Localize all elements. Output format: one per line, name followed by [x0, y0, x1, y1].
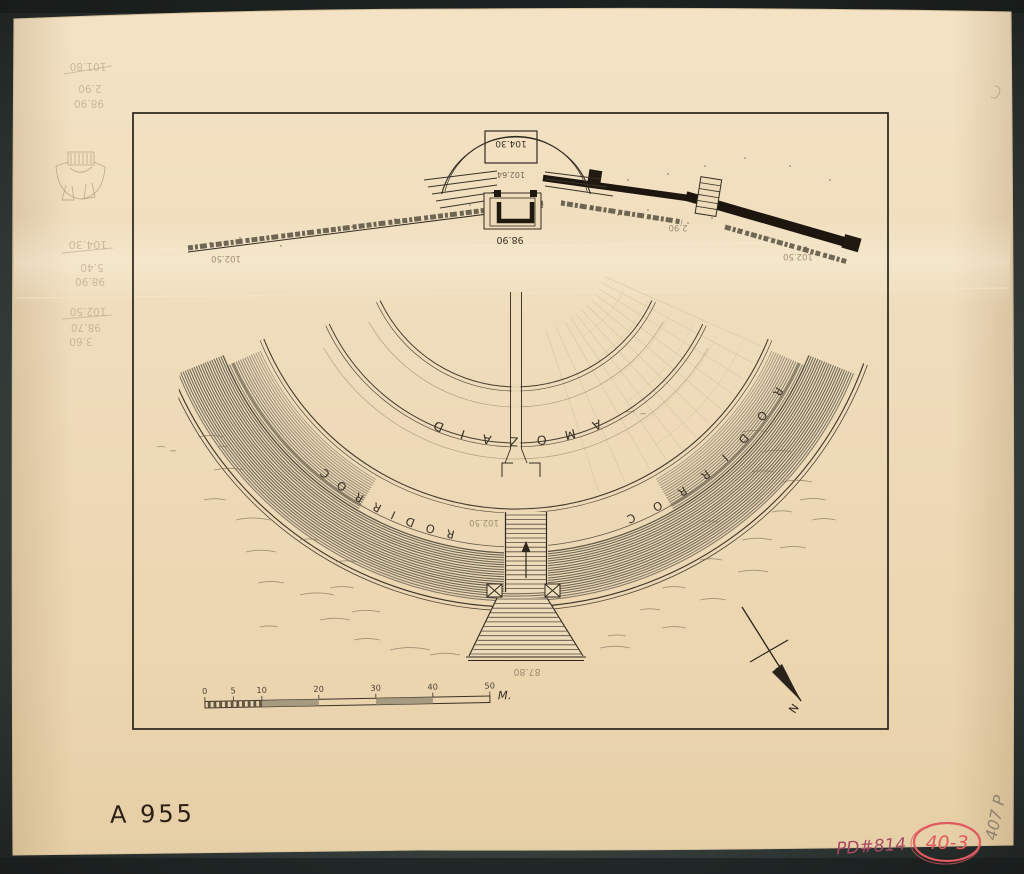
scale-tick-label: 50 [484, 680, 495, 690]
margin-note: 2.90 [78, 82, 101, 94]
aisle-clear-lane [512, 292, 521, 449]
scan-canvas: 101.80 2.90 98.90 104.30 5.40 98.90 102.… [0, 0, 1024, 874]
margin-note: 3.60 [69, 335, 92, 347]
gate-pier-left [494, 190, 501, 197]
margin-note: 98.70 [71, 321, 101, 333]
level-label-corridor-right: 102.50 [783, 251, 813, 261]
level-label-corridor-left: 102.50 [211, 253, 241, 263]
level-label-orchestra: 98.90 [496, 234, 523, 245]
scale-tick-label: 10 [256, 685, 267, 695]
bed-bottom-strip [0, 858, 1024, 874]
scale-bar-fill-30-40 [376, 697, 433, 705]
scale-tick-label: 20 [313, 684, 324, 694]
level-label-terrace: 102.64 [497, 170, 525, 179]
margin-note: 5.40 [80, 261, 103, 273]
level-label-stage: 104.30 [495, 138, 527, 148]
gate-pier-right [530, 190, 537, 197]
level-label-stairs-base: 87.80 [513, 666, 540, 677]
catalog-number: A 955 [110, 799, 195, 828]
scale-tick-label: 0 [202, 686, 207, 696]
scale-tick-label: 40 [427, 682, 438, 692]
circled-number: 40-3 [925, 832, 968, 854]
level-label-wall: 2.90 [669, 222, 688, 232]
scale-tick-label: 30 [370, 683, 381, 693]
margin-note: 98.90 [74, 97, 104, 109]
margin-note: 98.90 [75, 275, 105, 287]
scale-tick-label: 5 [231, 685, 236, 695]
scanned-theater-plan: { "plan": { "labels": { "diazoma": "DIAZ… [0, 0, 1024, 874]
scale-bar-fill-10-20 [262, 699, 319, 707]
scale-unit-label: M. [498, 688, 512, 702]
margin-note: 102.50 [70, 305, 107, 317]
level-label-corridor-bottom: 102.50 [469, 517, 499, 527]
